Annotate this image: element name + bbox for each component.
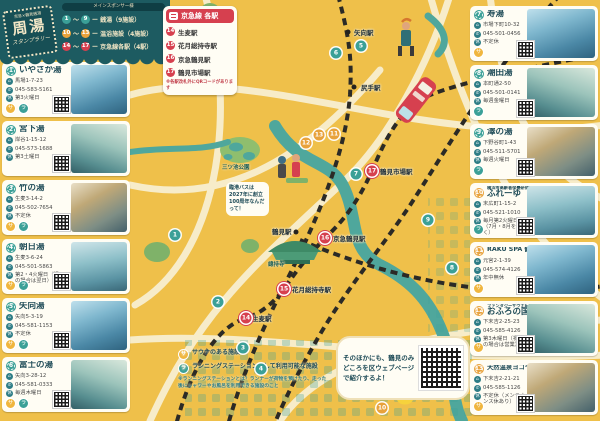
sauna-badge-icon: サ (5, 280, 16, 291)
facility-info-value: 下野谷町1-43 (483, 140, 516, 146)
facility-photo (527, 68, 595, 117)
phone-icon: ✆ (6, 264, 13, 271)
run-badge-icon: ラ (473, 106, 484, 117)
address-icon: ⌂ (474, 319, 481, 326)
facility-info-row: ✆045-501-0456 (474, 31, 526, 38)
place-label: 三ツ池公園 (222, 163, 250, 171)
address-icon: ⌂ (474, 201, 481, 208)
facility-card: 10横浜市高齢者保養研修施設ふれーゆ⌂末広町1-15-2✆045-521-101… (470, 183, 598, 238)
legend-tilde: 〜 (73, 42, 79, 51)
title-banner: メインスポンサー様 京急×鶴見銭湯 周湯 スタンプラリー 1〜9ー 銭湯（9施設… (0, 0, 170, 59)
station-number-badge: 17 (166, 68, 175, 77)
facility-info-row: ⌂市場下町10-32 (474, 22, 526, 29)
map-marker-9: 9 (423, 215, 434, 226)
facility-photo (71, 183, 127, 232)
address-icon: ⌂ (6, 314, 13, 321)
facility-name-wrap: 宮下湯 (19, 125, 45, 134)
facility-number-badge: 9 (474, 128, 484, 138)
closed-day-icon: 休 (6, 331, 13, 338)
run-badge-icon: ラ (473, 224, 484, 235)
legend-row-label: ー 京急線各駅（4駅） (92, 42, 152, 51)
facility-info-row: ✆045-585-4126 (474, 328, 526, 335)
facility-info-value: 045-581-1153 (15, 323, 53, 329)
facility-info-value: 毎週木曜日 (15, 390, 42, 396)
phone-icon: ✆ (474, 267, 481, 274)
facility-number-badge: 10 (474, 188, 484, 198)
place-label: 總持寺 (268, 260, 285, 268)
facility-number-badge: 8 (474, 69, 484, 79)
legend-row: 1〜9ー 銭湯（9施設） (62, 15, 152, 24)
closed-day-icon: 休 (6, 272, 13, 279)
station-label: 花月総持寺駅 (292, 284, 331, 294)
closed-day-icon: 休 (474, 157, 481, 164)
address-icon: ⌂ (474, 81, 481, 88)
run-station-note: ※ランニングステーションとは？ランナーが荷物を預けたり、走った後にシャワーやお風… (178, 377, 330, 390)
station-label: 鶴見駅 (272, 226, 292, 236)
facility-info-row: ⌂下野谷町1-43 (474, 140, 526, 147)
run-badge-icon: ラ (18, 221, 29, 232)
station-dot (352, 85, 357, 90)
facility-info-value: 045-585-4126 (483, 328, 521, 334)
facility-number-badge: 13 (474, 364, 484, 374)
keikyu-station-note: ※各駅改札外にQRコードがあります (166, 80, 234, 92)
station-name: 生麦駅 (178, 27, 198, 37)
map-marker-7: 7 (351, 169, 362, 180)
facility-info-value: 045-574-4126 (483, 267, 521, 273)
speech-bubble-web: そのほかにも、鶴見のみどころを区ウェブページで紹介するよ！ (336, 336, 470, 400)
facility-info-value: 045-585-1126 (483, 385, 521, 391)
facility-info-value: 045-511-5701 (483, 149, 521, 155)
closed-day-icon: 休 (474, 39, 481, 46)
amenity-legend: サ サウナのある施設 ラ ランニングステーションとして利用可能な施設 ※ランニン… (178, 349, 330, 390)
legend-range-end-badge: 17 (81, 42, 90, 51)
sauna-badge-icon: サ (178, 349, 189, 360)
closed-day-icon: 休 (6, 390, 13, 397)
station-dot (346, 30, 351, 35)
facility-info-value: 生麦3-14-2 (15, 196, 43, 202)
station-name: 花月総持寺駅 (178, 40, 217, 50)
facility-info-value: 市場下町10-32 (483, 22, 520, 28)
station-dot (294, 230, 299, 235)
facility-info-value: 生麦3-6-24 (15, 255, 43, 261)
map-marker-3: 3 (238, 343, 249, 354)
keikyu-station-row: 16京急鶴見駅 (166, 54, 234, 64)
address-icon: ⌂ (6, 373, 13, 380)
run-badge-icon: ラ (18, 280, 29, 291)
facility-info-value: 年中無休 (483, 275, 504, 281)
address-icon: ⌂ (474, 258, 481, 265)
facility-amenity-badges: サ (473, 401, 484, 412)
keikyu-station-row: 15花月総持寺駅 (166, 40, 234, 50)
map-marker-15: 15 (279, 284, 290, 295)
facility-amenity-badges: サ (473, 283, 484, 294)
facility-info-value: 末広町1-15-2 (483, 201, 516, 207)
legend-range-start-badge: 10 (62, 29, 71, 38)
facility-info-row: ✆045-583-5161 (6, 87, 68, 94)
station-label: 鶴見市場駅 (380, 166, 413, 176)
speech-bubble-left: 臨港バスは2027年に創立100周年なんだって！ (226, 182, 269, 216)
address-icon: ⌂ (474, 376, 481, 383)
station-name: 鶴見市場駅 (178, 67, 211, 77)
facility-number-badge: 6 (6, 361, 16, 371)
facility-info-row: ✆045-501-5863 (6, 264, 68, 271)
legend-range-end-badge: 9 (81, 15, 90, 24)
facility-qr-code (53, 155, 70, 172)
facility-amenity-badges: サラ (5, 280, 29, 291)
facility-card: 6富士の湯⌂矢向3-28-12✆045-581-0333休毎週木曜日サラ (2, 357, 130, 412)
facility-info-row: ⌂末広町1-15-2 (474, 201, 526, 208)
run-badge-icon: ラ (18, 103, 29, 114)
facility-number-badge: 4 (6, 243, 16, 253)
facility-info-value: 045-573-1688 (15, 146, 53, 152)
facility-name-wrap: 富士の湯 (19, 361, 53, 370)
legend-range-end-badge: 13 (81, 29, 90, 38)
address-icon: ⌂ (6, 78, 13, 85)
facility-amenity-badges: ラ (473, 106, 484, 117)
facility-info-value: 岸谷1-15-12 (15, 137, 46, 143)
facility-number-badge: 12 (474, 306, 484, 316)
legend-row: 14〜17ー 京急線各駅（4駅） (62, 42, 152, 51)
facility-info-row: ⌂矢向3-28-12 (6, 373, 68, 380)
facility-info-row: ⌂下末吉2-21-21 (474, 376, 526, 383)
facility-name: 富士の湯 (19, 361, 53, 370)
facility-amenity-badges: サラ (5, 103, 29, 114)
keikyu-station-list: 14生麦駅15花月総持寺駅16京急鶴見駅17鶴見市場駅 (166, 27, 234, 78)
sauna-badge-icon: サ (5, 103, 16, 114)
facility-amenity-badges: ラ (473, 165, 484, 176)
facility-photo (71, 242, 127, 291)
facility-info-row: ✆045-521-1010 (474, 210, 526, 217)
facility-name: 澤の湯 (487, 128, 513, 137)
run-badge-icon: ラ (473, 165, 484, 176)
run-badge-icon: ラ (178, 363, 189, 374)
facility-name: 矢向湯 (19, 302, 45, 311)
sauna-badge-icon: サ (473, 47, 484, 58)
facility-card: 7寿湯⌂市場下町10-32✆045-501-0456休不定休サ (470, 6, 598, 61)
facility-qr-code (53, 273, 70, 290)
facility-column-right: 7寿湯⌂市場下町10-32✆045-501-0456休不定休サ8潮田湯⌂本町通2… (470, 6, 598, 415)
station-number-badge: 14 (166, 27, 175, 36)
phone-icon: ✆ (6, 146, 13, 153)
map-marker-6: 6 (331, 48, 342, 59)
address-icon: ⌂ (474, 140, 481, 147)
facility-name-wrap: 寿湯 (487, 10, 504, 19)
facility-amenity-badges: サラ (5, 221, 29, 232)
facility-info-row: ⌂馬場1-7-23 (6, 78, 68, 85)
closed-day-icon: 休 (474, 98, 481, 105)
station-name: 京急鶴見駅 (178, 54, 211, 64)
facility-amenity-badges: サ (473, 47, 484, 58)
facility-card: 11RAKU SPA 鶴見⌂元宮2-1-39✆045-574-4126休年中無休… (470, 242, 598, 297)
facility-qr-code (517, 41, 534, 58)
legend-row: 10〜13ー 温浴施設（4施設） (62, 29, 152, 38)
sauna-badge-icon: サ (5, 339, 16, 350)
facility-photo (71, 301, 127, 350)
facility-name-wrap: 竹の湯 (19, 184, 45, 193)
facility-info-row: ⌂下末吉2-25-23 (474, 319, 526, 326)
facility-info-value: 045-502-7654 (15, 205, 53, 211)
map-marker-1: 1 (170, 230, 181, 241)
legend-range-start-badge: 14 (62, 42, 71, 51)
phone-icon: ✆ (6, 205, 13, 212)
sponsor-note: メインスポンサー様 (62, 3, 165, 11)
facility-number-badge: 11 (474, 246, 484, 256)
facility-amenity-badges: サラ (5, 398, 29, 409)
facility-name: 宮下湯 (19, 125, 45, 134)
facility-info-value: 第3土曜日 (15, 154, 40, 160)
facility-qr-code (517, 395, 534, 412)
facility-info-value: 元宮2-1-39 (483, 258, 511, 264)
facility-card: 13天然温泉ヨコヤマ・ユーランド鶴見⌂下末吉2-21-21✆045-585-11… (470, 360, 598, 415)
closed-day-icon: 休 (6, 95, 13, 102)
facility-info-row: ⌂岸谷1-15-12 (6, 137, 68, 144)
facility-info-value: 毎週火曜日 (483, 157, 510, 163)
station-label: 尻手駅 (361, 82, 381, 92)
facility-name-wrap: 矢向湯 (19, 302, 45, 311)
facility-amenity-badges: ラ (473, 224, 484, 235)
facility-photo (527, 245, 595, 294)
phone-icon: ✆ (474, 210, 481, 217)
address-icon: ⌂ (6, 255, 13, 262)
sauna-badge-icon: サ (473, 401, 484, 412)
facility-info-value: 045-501-0141 (483, 90, 521, 96)
sauna-badge-icon: サ (5, 398, 16, 409)
facility-name: 潮田湯 (487, 69, 513, 78)
facility-info-value: 045-581-0333 (15, 382, 53, 388)
keikyu-station-box-header: 京急線 各駅 (166, 9, 234, 23)
facility-info-row: ✆045-581-1153 (6, 323, 68, 330)
facility-info-value: 下末吉2-21-21 (483, 376, 520, 382)
facility-card: 8潮田湯⌂本町通2-50✆045-501-0141休毎週金曜日ラ (470, 65, 598, 120)
legend-tilde: 〜 (73, 29, 79, 38)
facility-info-row: ✆045-573-1688 (6, 146, 68, 153)
phone-icon: ✆ (6, 323, 13, 330)
facility-photo (527, 9, 595, 58)
facility-photo (527, 127, 595, 176)
facility-info-row: ✆045-574-4126 (474, 267, 526, 274)
station-label: 生麦駅 (252, 313, 272, 323)
map-key-legend: 1〜9ー 銭湯（9施設）10〜13ー 温浴施設（4施設）14〜17ー 京急線各駅… (62, 15, 152, 51)
legend-row-label: ー 銭湯（9施設） (92, 15, 140, 24)
phone-icon: ✆ (474, 149, 481, 156)
keikyu-station-row: 14生麦駅 (166, 27, 234, 37)
facility-info-value: 不定休 (15, 213, 31, 219)
facility-info-value: 045-501-0456 (483, 31, 521, 37)
facility-info-row: ⌂矢向5-3-19 (6, 314, 68, 321)
map-marker-5: 5 (356, 41, 367, 52)
legend-range-start-badge: 1 (62, 15, 71, 24)
facility-number-badge: 1 (6, 66, 16, 76)
facility-info-value: 下末吉2-25-23 (483, 319, 520, 325)
facility-amenity-badges: サ (473, 342, 484, 353)
map-marker-12: 12 (301, 138, 312, 149)
sauna-legend-row: サ サウナのある施設 (178, 349, 330, 360)
closed-day-icon: 休 (474, 393, 481, 400)
facility-name-wrap: 潮田湯 (487, 69, 513, 78)
facility-info-value: 不定休 (483, 39, 499, 45)
facility-qr-code (517, 277, 534, 294)
facility-name-wrap: 朝日湯 (19, 243, 45, 252)
facility-qr-code (517, 100, 534, 117)
keikyu-station-box: 京急線 各駅 14生麦駅15花月総持寺駅16京急鶴見駅17鶴見市場駅 ※各駅改札… (163, 6, 237, 95)
phone-icon: ✆ (6, 382, 13, 389)
facility-name: 寿湯 (487, 10, 504, 19)
train-icon (169, 12, 178, 20)
facility-qr-code (53, 96, 70, 113)
closed-day-icon: 休 (6, 213, 13, 220)
sauna-badge-icon: サ (5, 221, 16, 232)
keikyu-station-box-title: 京急線 各駅 (181, 11, 218, 21)
facility-column-left: 1いやさか湯⌂馬場1-7-23✆045-583-5161休第3火曜日サラ2宮下湯… (2, 62, 130, 412)
facility-info-row: ✆045-501-0141 (474, 90, 526, 97)
facility-card: 2宮下湯⌂岸谷1-15-12✆045-573-1688休第3土曜日 (2, 121, 130, 176)
address-icon: ⌂ (6, 196, 13, 203)
facility-number-badge: 3 (6, 184, 16, 194)
facility-photo (527, 186, 595, 235)
facility-photo (527, 304, 595, 353)
map-marker-11: 11 (329, 129, 340, 140)
facility-info-value: 不定休 (15, 331, 31, 337)
phone-icon: ✆ (474, 31, 481, 38)
map-marker-8: 8 (447, 263, 458, 274)
facility-amenity-badges: サラ (5, 339, 29, 350)
facility-name-wrap: 澤の湯 (487, 128, 513, 137)
facility-qr-code (53, 391, 70, 408)
facility-info-row: ✆045-581-0333 (6, 382, 68, 389)
run-badge-icon: ラ (18, 398, 29, 409)
facility-name: 竹の湯 (19, 184, 45, 193)
facility-info-row: ⌂元宮2-1-39 (474, 258, 526, 265)
stamp-rally-logo: 京急×鶴見銭湯 周湯 スタンプラリー (2, 5, 58, 59)
facility-photo (71, 360, 127, 409)
phone-icon: ✆ (474, 328, 481, 335)
facility-qr-code (53, 332, 70, 349)
facility-info-row: ⌂生麦3-6-24 (6, 255, 68, 262)
phone-icon: ✆ (474, 385, 481, 392)
address-icon: ⌂ (6, 137, 13, 144)
map-marker-4: 4 (256, 364, 267, 375)
facility-info-row: ✆045-511-5701 (474, 149, 526, 156)
facility-number-badge: 5 (6, 302, 16, 312)
legend-row-label: ー 温浴施設（4施設） (92, 29, 152, 38)
closed-day-icon: 休 (6, 154, 13, 161)
map-marker-10: 10 (377, 403, 388, 414)
facility-info-row: ⌂本町通2-50 (474, 81, 526, 88)
web-qr-code (419, 346, 463, 390)
map-marker-17: 17 (367, 166, 378, 177)
facility-info-value: 矢向3-28-12 (15, 373, 46, 379)
facility-info-value: 045-521-1010 (483, 210, 521, 216)
station-label: 矢向駅 (354, 27, 374, 37)
facility-number-badge: 2 (6, 125, 16, 135)
facility-info-value: 045-583-5161 (15, 87, 53, 93)
facility-photo (71, 65, 127, 114)
map-marker-13: 13 (314, 130, 325, 141)
map-marker-16: 16 (320, 233, 331, 244)
facility-info-value: 第3火曜日 (15, 95, 40, 101)
sauna-badge-icon: サ (473, 342, 484, 353)
facility-info-value: 045-501-5863 (15, 264, 53, 270)
phone-icon: ✆ (6, 87, 13, 94)
facility-qr-code (517, 218, 534, 235)
facility-info-row: ✆045-502-7654 (6, 205, 68, 212)
facility-photo (71, 124, 127, 173)
closed-day-icon: 休 (474, 275, 481, 282)
facility-name: いやさか湯 (19, 66, 62, 75)
facility-info-row: ✆045-585-1126 (474, 385, 526, 392)
legend-tilde: 〜 (73, 15, 79, 24)
facility-info-value: 馬場1-7-23 (15, 78, 43, 84)
facility-card: 5矢向湯⌂矢向5-3-19✆045-581-1153休不定休サラ (2, 298, 130, 353)
sauna-badge-icon: サ (473, 283, 484, 294)
map-marker-14: 14 (241, 313, 252, 324)
station-number-badge: 15 (166, 41, 175, 50)
facility-card: 9澤の湯⌂下野谷町1-43✆045-511-5701休毎週火曜日ラ (470, 124, 598, 179)
facility-info-value: 本町通2-50 (483, 81, 511, 87)
facility-name: 朝日湯 (19, 243, 45, 252)
speech-bubble-web-text: そのほかにも、鶴見のみどころを区ウェブページで紹介するよ！ (343, 353, 415, 383)
facility-qr-code (517, 336, 534, 353)
address-icon: ⌂ (474, 22, 481, 29)
facility-card: 12ファンタジーサウナ&スパおふろの国⌂下末吉2-25-23✆045-585-4… (470, 301, 598, 356)
station-number-badge: 16 (166, 54, 175, 63)
phone-icon: ✆ (474, 90, 481, 97)
facility-info-row: ⌂生麦3-14-2 (6, 196, 68, 203)
station-label: 京急鶴見駅 (333, 233, 366, 243)
facility-qr-code (53, 214, 70, 231)
facility-qr-code (517, 159, 534, 176)
facility-card: 4朝日湯⌂生麦3-6-24✆045-501-5863休第2・4火曜日（祝日の場合… (2, 239, 130, 294)
facility-card: 3竹の湯⌂生麦3-14-2✆045-502-7654休不定休サラ (2, 180, 130, 235)
facility-info-value: 矢向5-3-19 (15, 314, 43, 320)
sauna-legend-label: サウナのある施設 (192, 349, 240, 357)
keikyu-station-row: 17鶴見市場駅 (166, 67, 234, 77)
facility-info-value: 毎週金曜日 (483, 98, 510, 104)
facility-photo (527, 363, 595, 412)
run-badge-icon: ラ (18, 339, 29, 350)
run-legend-row: ラ ランニングステーションとして利用可能な施設 (178, 363, 330, 374)
facility-card: 1いやさか湯⌂馬場1-7-23✆045-583-5161休第3火曜日サラ (2, 62, 130, 117)
facility-number-badge: 7 (474, 10, 484, 20)
map-marker-2: 2 (213, 297, 224, 308)
facility-name-wrap: いやさか湯 (19, 66, 62, 75)
